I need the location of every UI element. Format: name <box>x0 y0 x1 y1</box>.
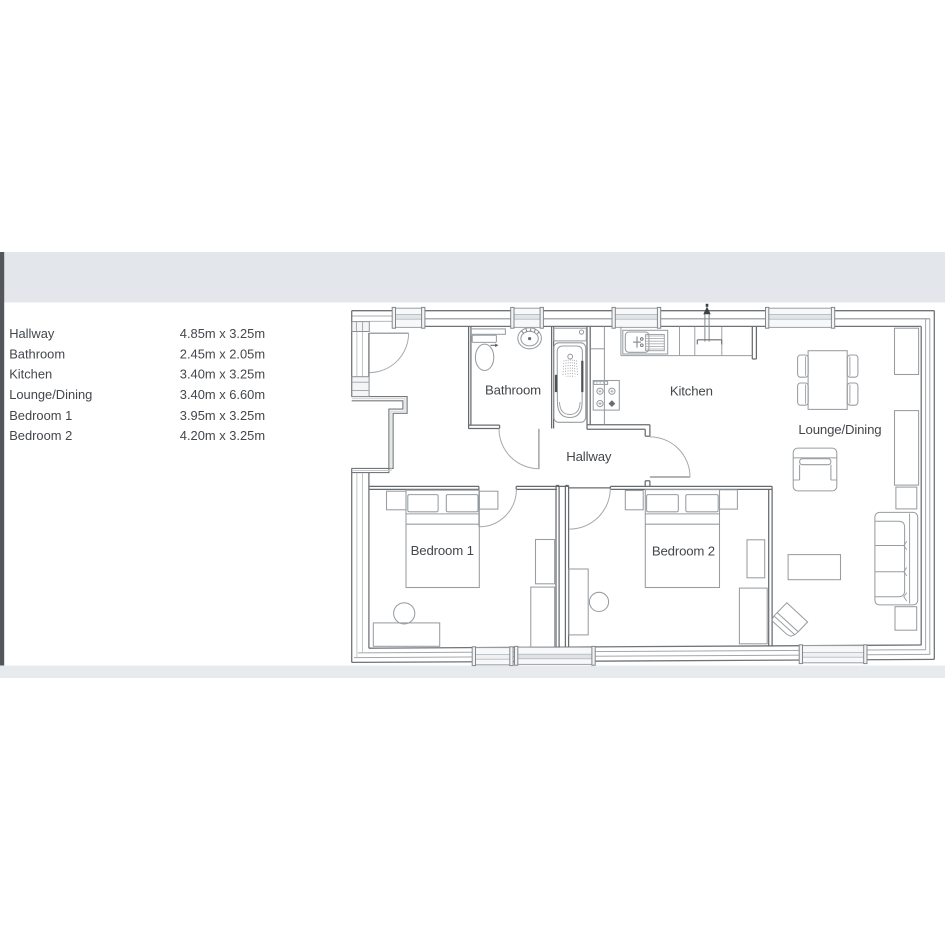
svg-text:Bedroom 1: Bedroom 1 <box>9 408 72 423</box>
svg-text:Lounge/Dining: Lounge/Dining <box>798 422 881 437</box>
svg-text:Lounge/Dining: Lounge/Dining <box>9 387 92 402</box>
svg-text:Kitchen: Kitchen <box>9 367 52 382</box>
svg-text:Bathroom: Bathroom <box>9 347 65 362</box>
svg-text:4.20m x 3.25m: 4.20m x 3.25m <box>180 428 265 443</box>
svg-text:3.40m x 3.25m: 3.40m x 3.25m <box>180 367 265 382</box>
svg-text:Kitchen: Kitchen <box>670 384 713 399</box>
svg-text:Hallway: Hallway <box>566 449 612 464</box>
svg-text:Hallway: Hallway <box>9 326 55 341</box>
svg-text:Bedroom 1: Bedroom 1 <box>411 543 474 558</box>
svg-text:2.45m x 2.05m: 2.45m x 2.05m <box>180 347 265 362</box>
svg-text:Bedroom 2: Bedroom 2 <box>9 428 72 443</box>
svg-text:Bedroom 2: Bedroom 2 <box>652 544 715 559</box>
svg-text:Bathroom: Bathroom <box>485 382 541 397</box>
svg-text:3.95m x 3.25m: 3.95m x 3.25m <box>180 408 265 423</box>
svg-text:3.40m x 6.60m: 3.40m x 6.60m <box>180 387 265 402</box>
svg-text:4.85m x 3.25m: 4.85m x 3.25m <box>180 326 265 341</box>
